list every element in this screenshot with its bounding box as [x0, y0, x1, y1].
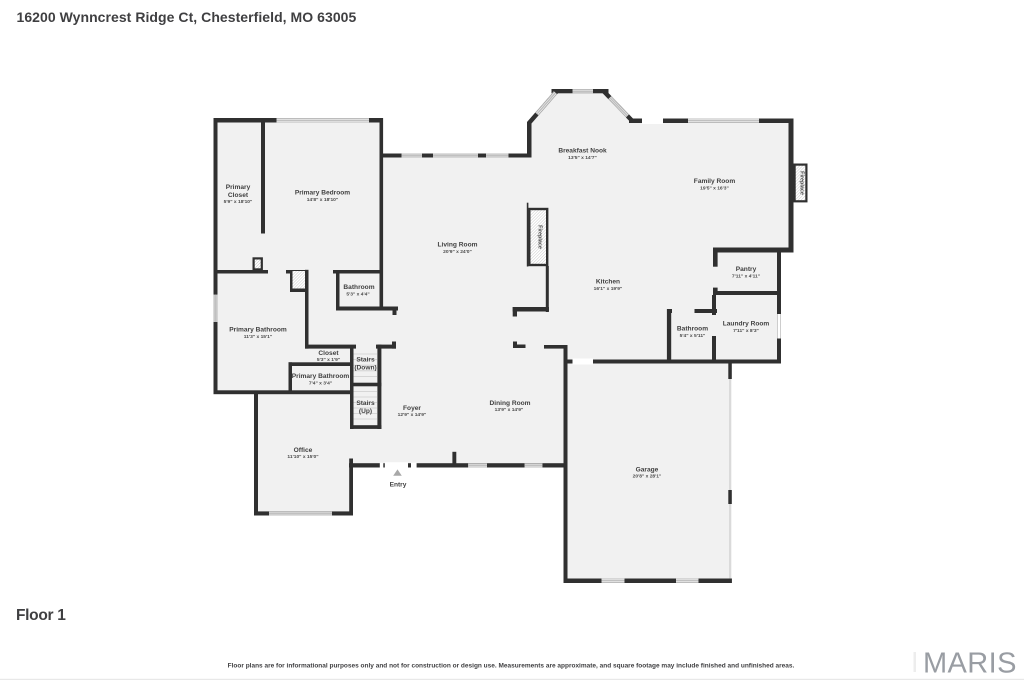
svg-text:7'4" x 3'4": 7'4" x 3'4" — [309, 381, 332, 387]
svg-text:11'10" x 15'0": 11'10" x 15'0" — [287, 454, 318, 460]
svg-text:Primary Bathroom: Primary Bathroom — [229, 327, 287, 334]
svg-text:13'9" x 14'9": 13'9" x 14'9" — [495, 407, 524, 413]
svg-text:Floor 1: Floor 1 — [16, 607, 66, 624]
svg-text:Dining Room: Dining Room — [489, 400, 530, 407]
svg-text:20'9" x 24'0": 20'9" x 24'0" — [443, 249, 472, 255]
svg-text:Entry: Entry — [390, 481, 407, 488]
svg-text:(Down): (Down) — [354, 365, 376, 372]
svg-text:16'1" x 19'9": 16'1" x 19'9" — [594, 286, 623, 292]
svg-text:Pantry: Pantry — [736, 266, 757, 273]
svg-text:Living Room: Living Room — [438, 242, 478, 249]
svg-text:Office: Office — [294, 447, 313, 454]
svg-text:5'3" x 4'4": 5'3" x 4'4" — [346, 292, 369, 298]
svg-text:5'4" x 5'11": 5'4" x 5'11" — [680, 333, 706, 339]
svg-text:11'3" x 15'1": 11'3" x 15'1" — [244, 334, 272, 340]
svg-text:MARIS: MARIS — [923, 647, 1017, 679]
svg-text:Primary Bathroom: Primary Bathroom — [292, 373, 350, 380]
svg-text:20'8" x 28'1": 20'8" x 28'1" — [633, 474, 662, 480]
svg-text:Breakfast Nook: Breakfast Nook — [558, 148, 607, 155]
svg-text:(Up): (Up) — [359, 408, 372, 415]
svg-text:Family Room: Family Room — [694, 178, 736, 185]
svg-text:Stairs: Stairs — [356, 356, 375, 363]
svg-text:Foyer: Foyer — [403, 405, 421, 412]
svg-text:Fireplace: Fireplace — [536, 225, 542, 249]
svg-text:Floor plans are for informatio: Floor plans are for informational purpos… — [228, 662, 795, 669]
svg-text:Bathroom: Bathroom — [677, 326, 708, 333]
svg-text:Bathroom: Bathroom — [343, 284, 374, 291]
svg-text:Closet: Closet — [318, 350, 339, 357]
svg-text:Primary Bedroom: Primary Bedroom — [295, 190, 350, 197]
svg-text:Stairs: Stairs — [356, 400, 375, 407]
svg-text:Laundry Room: Laundry Room — [723, 321, 770, 328]
svg-text:7'11" x 8'3": 7'11" x 8'3" — [733, 328, 759, 334]
svg-text:13'5" x 14'7": 13'5" x 14'7" — [568, 155, 597, 161]
svg-text:16200 Wynncrest Ridge Ct, Ches: 16200 Wynncrest Ridge Ct, Chesterfield, … — [17, 9, 357, 25]
svg-text:5'9" x 18'10": 5'9" x 18'10" — [224, 199, 253, 205]
svg-text:Garage: Garage — [636, 467, 659, 474]
svg-text:Fireplace: Fireplace — [799, 171, 805, 195]
svg-text:19'5" x 16'3": 19'5" x 16'3" — [700, 185, 729, 191]
svg-text:14'8" x 18'10": 14'8" x 18'10" — [307, 197, 338, 203]
svg-text:Primary: Primary — [226, 184, 251, 191]
svg-text:Closet: Closet — [228, 192, 249, 199]
svg-text:Kitchen: Kitchen — [596, 279, 620, 286]
svg-text:12'9" x 14'9": 12'9" x 14'9" — [398, 412, 427, 418]
svg-text:5'3" x 1'9": 5'3" x 1'9" — [317, 357, 340, 363]
svg-text:7'11" x 4'11": 7'11" x 4'11" — [732, 273, 760, 279]
